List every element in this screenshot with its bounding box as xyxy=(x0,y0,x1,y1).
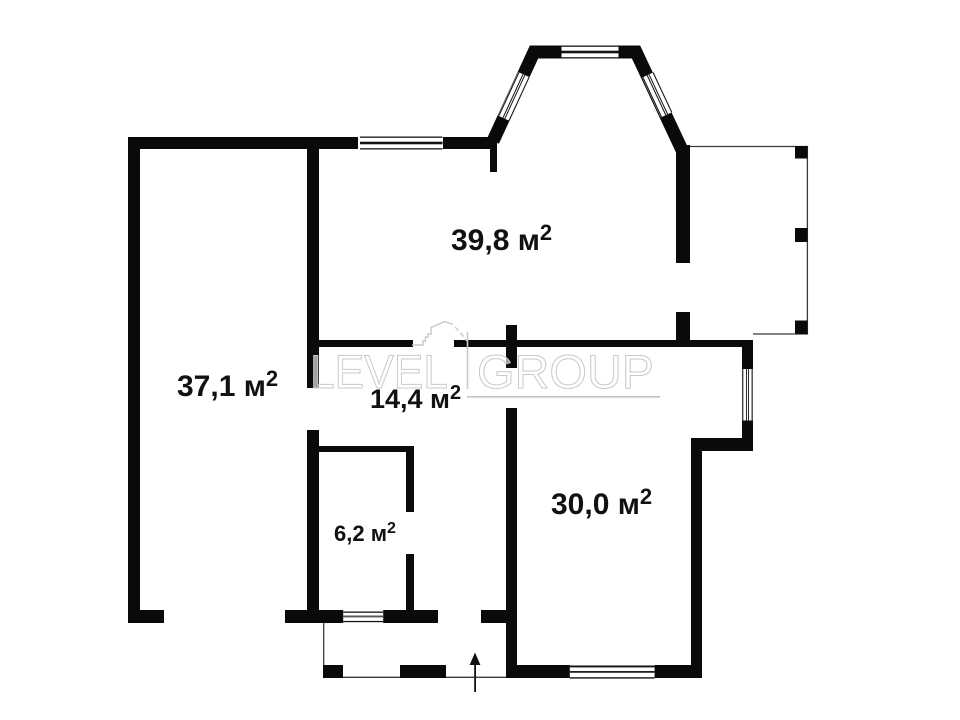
svg-text:6,2 м2: 6,2 м2 xyxy=(334,520,396,546)
svg-text:30,0 м2: 30,0 м2 xyxy=(551,484,652,521)
svg-text:GROUP: GROUP xyxy=(477,345,654,398)
svg-text:39,8 м2: 39,8 м2 xyxy=(451,220,552,257)
svg-text:14,4 м2: 14,4 м2 xyxy=(370,382,461,414)
svg-text:37,1 м2: 37,1 м2 xyxy=(177,366,278,403)
